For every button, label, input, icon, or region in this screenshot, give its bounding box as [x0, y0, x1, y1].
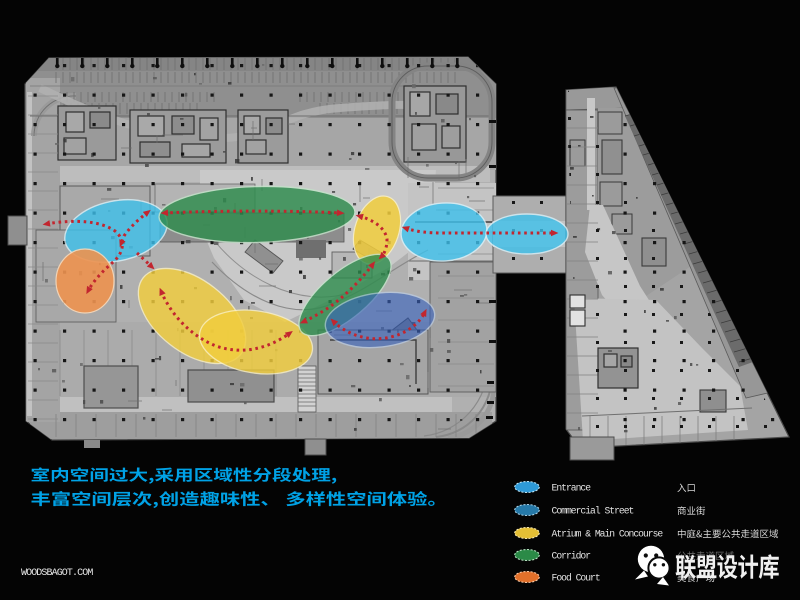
svg-text:WOODSBAGOT.COM: WOODSBAGOT.COM: [21, 568, 93, 579]
svg-text:Entrance: Entrance: [552, 483, 592, 494]
svg-text:Food Court: Food Court: [552, 573, 600, 584]
svg-text:Atrium & Main Concourse: Atrium & Main Concourse: [552, 529, 664, 540]
svg-text:Corridor: Corridor: [552, 551, 591, 562]
svg-text:Commercial Street: Commercial Street: [552, 506, 634, 517]
